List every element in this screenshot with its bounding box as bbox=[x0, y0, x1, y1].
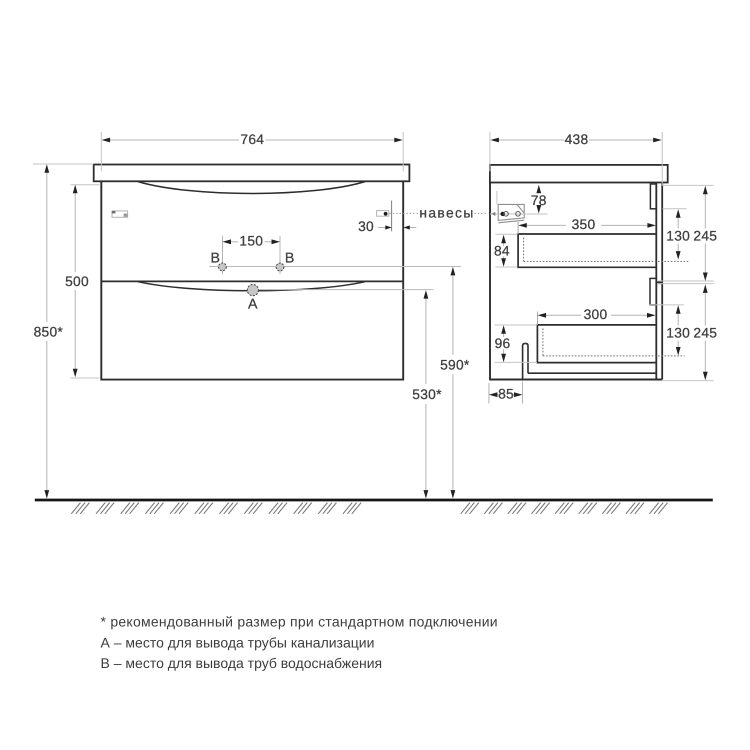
svg-text:B: B bbox=[210, 250, 220, 266]
svg-text:навесы: навесы bbox=[419, 206, 474, 221]
svg-text:438: 438 bbox=[565, 132, 589, 147]
svg-text:30: 30 bbox=[358, 219, 374, 234]
svg-text:764: 764 bbox=[240, 132, 264, 147]
svg-text:А – место для вывода трубы кан: А – место для вывода трубы канализации bbox=[101, 634, 375, 650]
svg-text:84: 84 bbox=[494, 244, 510, 259]
svg-text:300: 300 bbox=[584, 307, 608, 322]
svg-text:B: B bbox=[285, 250, 295, 266]
svg-text:96: 96 bbox=[495, 336, 511, 351]
svg-text:850*: 850* bbox=[34, 324, 64, 339]
svg-text:85: 85 bbox=[498, 387, 514, 402]
svg-text:590*: 590* bbox=[440, 357, 470, 372]
svg-text:* рекомендованный размер при с: * рекомендованный размер при стандартном… bbox=[101, 614, 498, 630]
svg-text:150: 150 bbox=[239, 234, 263, 249]
svg-text:A: A bbox=[248, 297, 258, 313]
svg-text:245: 245 bbox=[693, 326, 717, 341]
svg-text:130: 130 bbox=[666, 229, 690, 244]
svg-text:245: 245 bbox=[693, 229, 717, 244]
svg-text:530*: 530* bbox=[412, 387, 442, 402]
svg-text:500: 500 bbox=[65, 274, 89, 289]
svg-text:В – место для вывода труб водо: В – место для вывода труб водоснабжения bbox=[101, 655, 383, 671]
svg-text:130: 130 bbox=[666, 326, 690, 341]
svg-text:350: 350 bbox=[572, 217, 596, 232]
svg-text:78: 78 bbox=[531, 193, 547, 208]
